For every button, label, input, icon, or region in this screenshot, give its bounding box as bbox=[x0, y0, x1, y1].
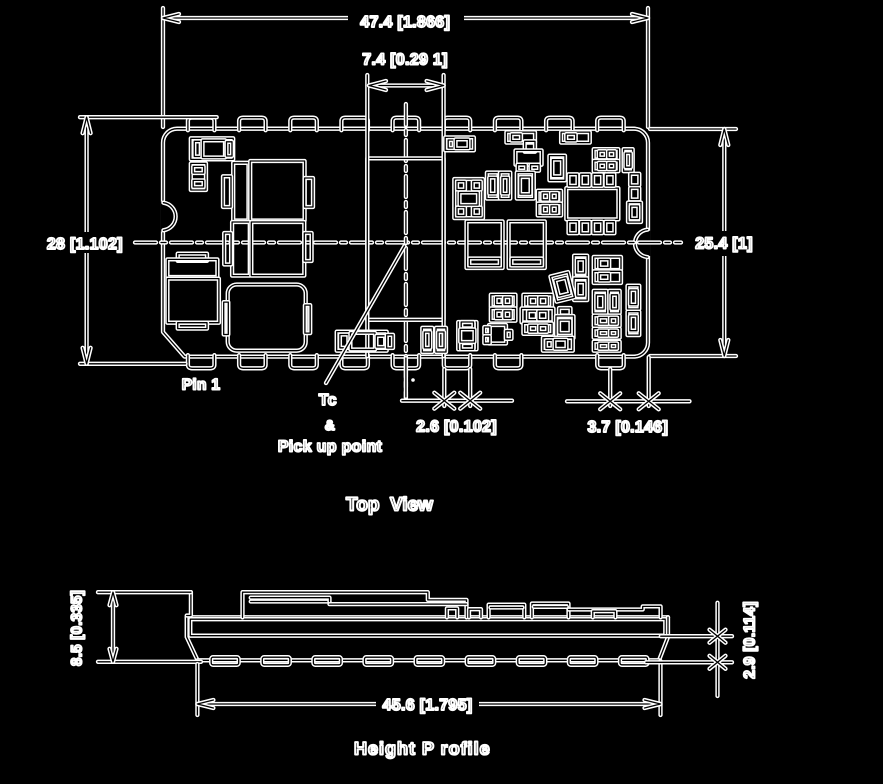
svg-text:Tc: Tc bbox=[319, 392, 337, 409]
svg-text:47.4 [1.866]: 47.4 [1.866] bbox=[360, 14, 450, 31]
svg-text:Pin 1: Pin 1 bbox=[182, 377, 221, 394]
svg-text:7.4 [0.29 1]: 7.4 [0.29 1] bbox=[362, 52, 447, 69]
svg-text:25.4 [1]: 25.4 [1] bbox=[695, 235, 753, 252]
svg-text:2.6 [0.102]: 2.6 [0.102] bbox=[416, 419, 497, 436]
svg-text:45.6 [1.795]: 45.6 [1.795] bbox=[383, 697, 473, 714]
svg-text:28 [1.102]: 28 [1.102] bbox=[47, 236, 123, 253]
svg-text:2.9 [0.114]: 2.9 [0.114] bbox=[742, 601, 759, 678]
svg-text:3.7 [0.146]: 3.7 [0.146] bbox=[587, 419, 668, 436]
svg-text:8.5 [0.335]: 8.5 [0.335] bbox=[69, 590, 86, 666]
svg-text:Pick up point: Pick up point bbox=[278, 439, 383, 456]
svg-text:Top View: Top View bbox=[346, 495, 433, 516]
svg-text:Height P rofile: Height P rofile bbox=[354, 739, 491, 759]
svg-text:&: & bbox=[325, 417, 335, 433]
